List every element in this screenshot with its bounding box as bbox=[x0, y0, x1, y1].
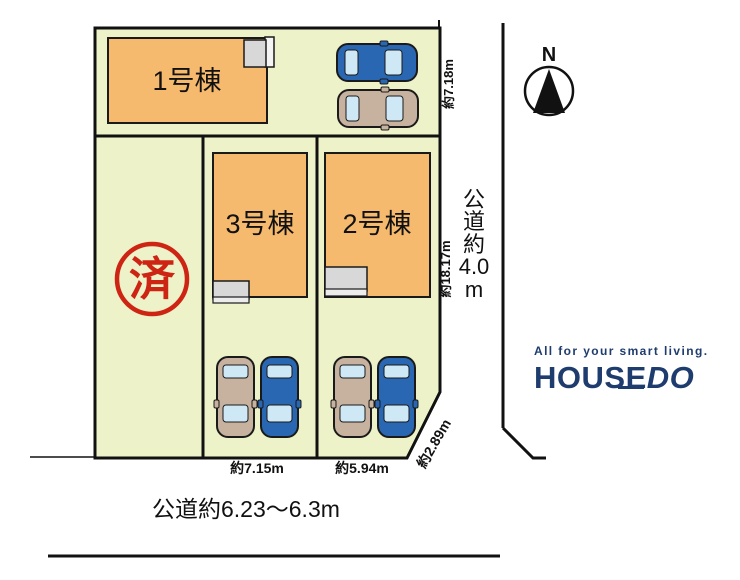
logo-wordmark: HOUSEDO bbox=[534, 360, 704, 396]
road-line-right-corner bbox=[503, 428, 546, 458]
road-right-char: 約 bbox=[463, 234, 485, 256]
building-3-porch bbox=[213, 281, 249, 299]
logo-do-text: DO bbox=[647, 360, 695, 395]
car-blue-top-icon bbox=[337, 41, 417, 84]
compass-n-label: N bbox=[542, 44, 556, 66]
car-beige-top-icon bbox=[338, 87, 418, 130]
building-1-porch bbox=[244, 40, 266, 67]
road-right-char: 4.0 bbox=[459, 256, 490, 278]
housedo-logo: All for your smart living. HOUSEDO bbox=[534, 344, 704, 396]
road-right-char: 公 bbox=[463, 189, 485, 211]
site-plan-page: 1号棟 3号棟 2号棟 済 約7.15m 約5.94m 約2.89m 約7.18… bbox=[0, 0, 740, 580]
logo-tagline: All for your smart living. bbox=[534, 344, 704, 358]
road-right-char: m bbox=[465, 279, 483, 301]
sold-stamp-text: 済 bbox=[129, 253, 176, 305]
dim-bottom-center: 約7.15m bbox=[230, 460, 284, 476]
building-3-porch-step bbox=[213, 297, 249, 303]
road-right-char: 道 bbox=[463, 211, 485, 233]
dim-bottom-right: 約5.94m bbox=[335, 460, 389, 476]
car-blue-parcel3-icon bbox=[258, 357, 301, 437]
road-bottom-label: 公道約6.23〜6.3m bbox=[152, 496, 340, 522]
dim-right-top: 約7.18m bbox=[441, 59, 456, 109]
building-2-label: 2号棟 bbox=[342, 209, 411, 239]
building-1-label: 1号棟 bbox=[152, 66, 221, 96]
site-plan-drawing: 1号棟 3号棟 2号棟 済 約7.15m 約5.94m 約2.89m 約7.18… bbox=[0, 0, 740, 580]
car-beige-parcel3-icon bbox=[214, 357, 257, 437]
logo-house-text: HOUSE bbox=[534, 360, 647, 395]
dim-right-main: 約18.17m bbox=[438, 240, 453, 297]
road-right-label: 公 道 約 4.0 m bbox=[458, 189, 490, 301]
logo-underline bbox=[618, 386, 644, 389]
building-2-porch-step bbox=[325, 289, 367, 296]
car-beige-parcel2-icon bbox=[331, 357, 374, 437]
building-2-porch bbox=[325, 267, 367, 291]
car-blue-parcel2-icon bbox=[375, 357, 418, 437]
building-3-label: 3号棟 bbox=[225, 209, 294, 239]
